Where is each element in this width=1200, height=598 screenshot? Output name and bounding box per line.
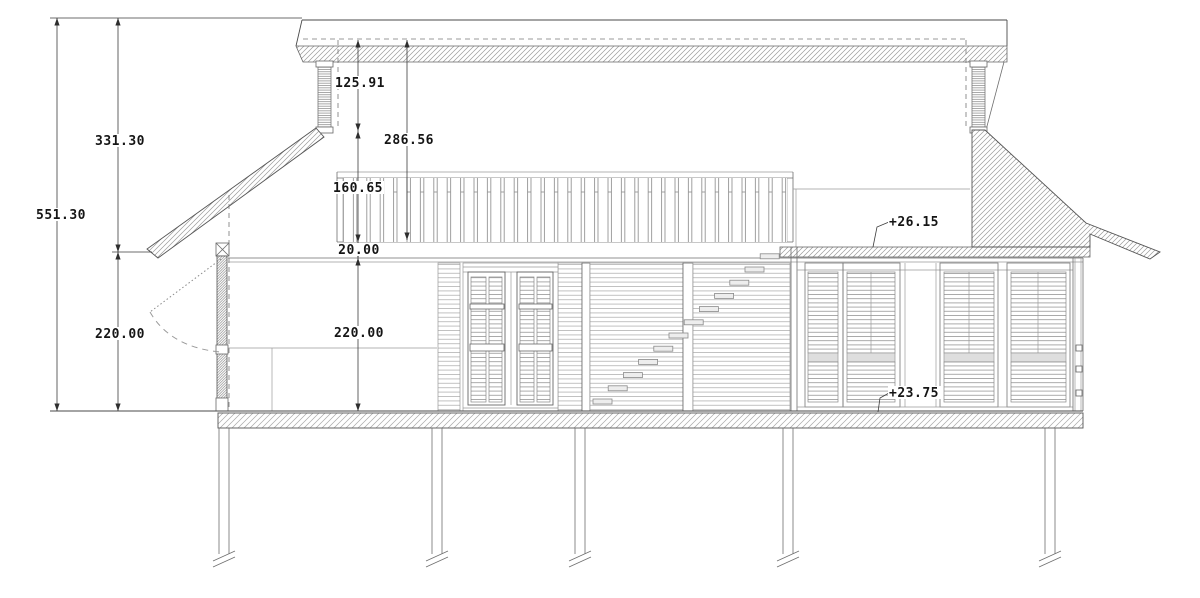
- dim-upper-zone-height: 331.30: [95, 134, 145, 149]
- louvered-double-door: [463, 263, 558, 411]
- window-unit-1: [805, 263, 843, 407]
- dim-overall-height: 551.30: [36, 208, 86, 223]
- dim-roof-edge-thickness: 20.00: [338, 243, 380, 258]
- dim-interior-clear-height: 220.00: [334, 326, 384, 341]
- right-wall-post: [1073, 258, 1083, 411]
- level-eave: +26.15: [889, 215, 939, 230]
- level-floor: +23.75: [889, 386, 939, 401]
- left-roof: [147, 128, 324, 258]
- window-unit-4: [1007, 263, 1070, 407]
- dim-clerestory-band: 160.65: [333, 181, 383, 196]
- door-swing: [150, 259, 221, 352]
- right-roof: [780, 130, 1160, 259]
- floor-slab: [50, 411, 1083, 428]
- dim-left-wall-height: 220.00: [95, 327, 145, 342]
- foundation-piles: [213, 428, 1061, 567]
- upper-roof: [296, 20, 1007, 130]
- building-section-drawing: 551.30 331.30 220.00 125.91 286.56 160.6…: [0, 0, 1200, 598]
- left-wall-section: [216, 195, 229, 411]
- architectural-section-sheet: 551.30 331.30 220.00 125.91 286.56 160.6…: [0, 0, 1200, 598]
- dim-clerestory-overall: 286.56: [384, 133, 434, 148]
- dim-clerestory-upper: 125.91: [335, 76, 385, 91]
- window-unit-3: [940, 263, 998, 407]
